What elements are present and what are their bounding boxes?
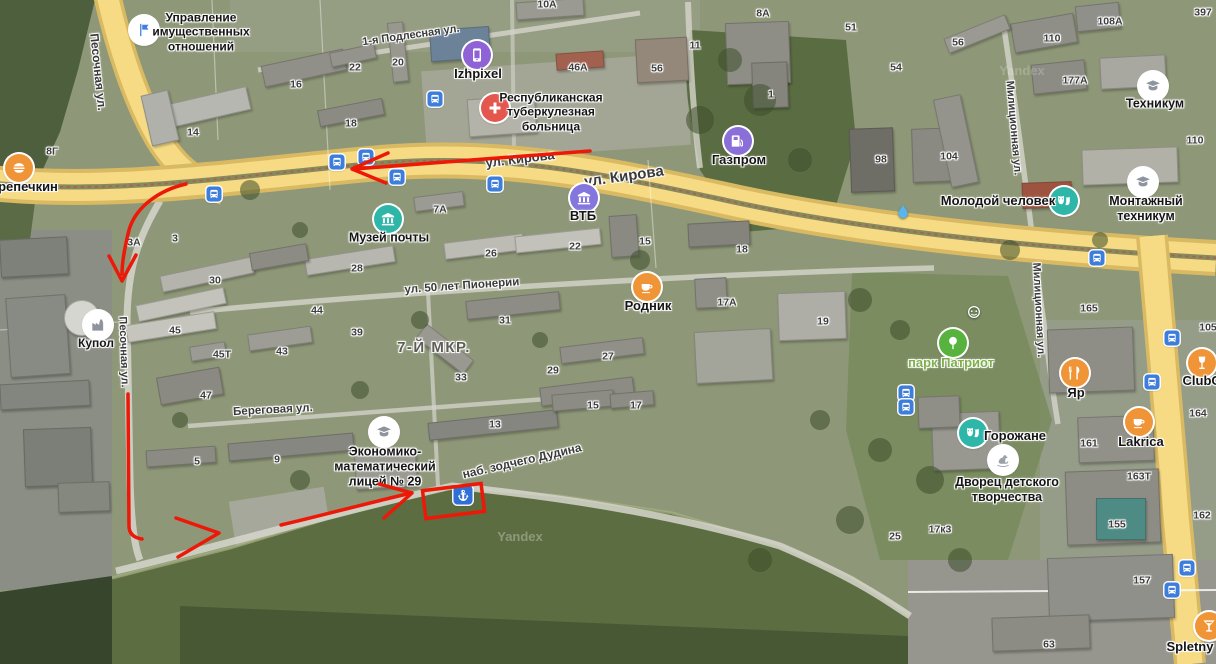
- bus-stop-icon[interactable]: [428, 92, 443, 107]
- building: [149, 86, 252, 132]
- house-number: 54: [890, 62, 902, 75]
- house-number: 18: [345, 118, 357, 131]
- street-label: Милиционная ул.: [1029, 262, 1047, 357]
- building: [559, 337, 644, 364]
- building: [159, 256, 254, 292]
- building: [751, 61, 789, 108]
- building: [57, 481, 110, 513]
- building: [917, 395, 960, 428]
- house-number: 16: [290, 79, 302, 92]
- house-number: 29: [547, 365, 559, 378]
- izhpixel-label[interactable]: Izhpixel: [454, 66, 502, 82]
- gorozhane-icon[interactable]: [959, 419, 987, 447]
- post-museum-icon[interactable]: [374, 205, 402, 233]
- house-number: 397: [1194, 7, 1212, 20]
- house-number: 33: [455, 372, 467, 385]
- street-label: ул. Кирова: [583, 163, 665, 192]
- bus-stop-icon[interactable]: [899, 400, 914, 415]
- district-label: 7-Й МКР.: [397, 339, 471, 357]
- perepechkin-icon[interactable]: [5, 154, 33, 182]
- house-number: 108А: [1097, 16, 1122, 29]
- tree: [810, 410, 830, 430]
- house-number: 19: [817, 316, 829, 329]
- house-number: 11: [689, 40, 700, 53]
- pier-anchor-icon[interactable]: [454, 486, 473, 505]
- park-attraction-icon[interactable]: [965, 303, 983, 321]
- lyceum-29-icon[interactable]: [370, 418, 398, 446]
- tree: [836, 506, 864, 534]
- tree: [290, 470, 310, 490]
- spletny-label[interactable]: Spletny: [1167, 639, 1214, 655]
- house-number: 98: [875, 154, 887, 167]
- house-number: 8Г: [46, 146, 58, 159]
- building: [261, 49, 348, 88]
- building: [694, 328, 774, 384]
- street-label: Береговая ул.: [233, 402, 313, 420]
- building: [145, 446, 216, 468]
- gazprom-icon[interactable]: [724, 127, 752, 155]
- perepechkin-label[interactable]: репечкин: [0, 179, 58, 195]
- house-number: 164: [1189, 408, 1207, 421]
- tree: [788, 148, 812, 172]
- building: [1031, 59, 1088, 94]
- tree: [748, 548, 772, 572]
- building: [1010, 13, 1078, 54]
- map-watermark: Yandex: [999, 63, 1045, 79]
- drawn-arrow: [128, 394, 142, 539]
- drawn-arrow: [109, 255, 136, 281]
- tb-hospital-label[interactable]: Республиканская туберкулезная больница: [499, 90, 602, 133]
- icons-layer: репечкинУправление имущественных отношен…: [0, 0, 1216, 664]
- yar-label[interactable]: Яр: [1067, 385, 1084, 401]
- lakrica-icon[interactable]: [1125, 408, 1153, 436]
- house-number: 20: [392, 57, 404, 70]
- drawn-arrow: [281, 494, 407, 525]
- house-number: 161: [1080, 438, 1098, 451]
- building: [329, 43, 377, 67]
- tree: [351, 381, 369, 399]
- house-number: 44: [311, 305, 323, 318]
- building: [317, 98, 385, 127]
- building: [849, 127, 895, 192]
- house-number: 9: [274, 454, 280, 467]
- tree: [240, 180, 260, 200]
- house-number: 22: [569, 241, 581, 254]
- house-number: 17А: [717, 297, 736, 310]
- izhpixel-icon[interactable]: [463, 41, 491, 69]
- house-number: 14: [187, 127, 199, 140]
- tree: [718, 48, 742, 72]
- building: [555, 50, 604, 70]
- bus-stop-icon[interactable]: [390, 170, 405, 185]
- house-number: 110: [1187, 135, 1204, 148]
- yar-icon[interactable]: [1061, 359, 1089, 387]
- house-number: 63: [1043, 639, 1055, 652]
- building: [125, 311, 217, 343]
- dvorets-detskogo-icon[interactable]: [989, 446, 1017, 474]
- labels-layer: Песочная ул.Песочная ул.1-я Подлесная ул…: [0, 0, 1216, 664]
- house-number: 13: [489, 419, 501, 432]
- building: [1096, 498, 1146, 540]
- tree: [848, 288, 872, 312]
- house-number: 28: [351, 263, 363, 276]
- building: [427, 409, 558, 440]
- tree: [916, 466, 944, 494]
- bus-stop-icon[interactable]: [488, 177, 503, 192]
- bus-stop-icon[interactable]: [1165, 331, 1180, 346]
- building: [416, 323, 474, 374]
- bus-stop-icon[interactable]: [1165, 583, 1180, 598]
- building: [5, 294, 70, 378]
- street-label: ул. 50 лет Пионерии: [404, 276, 520, 298]
- bus-stop-icon[interactable]: [207, 187, 222, 202]
- building: [387, 21, 409, 82]
- house-number: 105: [1199, 322, 1216, 335]
- house-number: 18: [736, 244, 748, 257]
- street-label: Песочная ул.: [115, 316, 131, 388]
- kupol-label[interactable]: Купол: [78, 336, 114, 350]
- house-number: 157: [1133, 575, 1151, 588]
- street-label: 1-я Подлесная ул.: [362, 23, 461, 50]
- house-number: 17к3: [929, 524, 952, 537]
- dvorets-detskogo-label[interactable]: Дворец детского творчества: [955, 475, 1059, 505]
- bus-stop-icon[interactable]: [359, 150, 374, 165]
- map-watermark: Yandex: [497, 529, 543, 545]
- rodnik-icon[interactable]: [633, 273, 661, 301]
- building: [443, 233, 524, 260]
- house-number: 56: [651, 63, 663, 76]
- kupol-icon[interactable]: [84, 311, 112, 339]
- satellite-terrain: [0, 0, 1216, 664]
- house-number: 7А: [433, 204, 446, 217]
- route-annotations: [0, 0, 1216, 664]
- tree: [948, 548, 972, 572]
- lyceum-29-label[interactable]: Экономико- математический лицей № 29: [334, 445, 435, 490]
- building: [609, 390, 654, 409]
- tree: [292, 222, 308, 238]
- fountain-icon[interactable]: [894, 203, 912, 221]
- bus-stop-icon[interactable]: [1145, 375, 1160, 390]
- bus-stop-icon[interactable]: [1180, 561, 1195, 576]
- drawn-arrow: [354, 151, 590, 169]
- building: [725, 21, 791, 85]
- building: [135, 287, 227, 322]
- street-label: Песочная ул.: [87, 33, 109, 112]
- drawn-arrow: [176, 518, 219, 557]
- house-number: 45Т: [213, 349, 231, 362]
- tree: [630, 250, 650, 270]
- tree: [744, 84, 776, 116]
- building: [777, 291, 847, 341]
- clubo-label[interactable]: ClubO: [1183, 373, 1216, 389]
- house-number: 26: [485, 248, 497, 261]
- gorozhane-label[interactable]: Горожане: [984, 428, 1046, 444]
- buildings-layer: [0, 0, 1216, 664]
- street-label: наб. зодчего Дудина: [461, 440, 583, 481]
- house-number: 1: [768, 89, 774, 102]
- house-number: 27: [602, 351, 614, 364]
- house-number: 163Т: [1127, 471, 1151, 484]
- tree: [1092, 232, 1108, 248]
- building: [1065, 468, 1162, 545]
- house-number: 155: [1108, 519, 1126, 532]
- building: [1075, 2, 1121, 32]
- house-number: 8А: [756, 8, 769, 21]
- building: [911, 127, 959, 183]
- house-number: 47: [200, 390, 212, 403]
- rodnik-label[interactable]: Родник: [625, 298, 672, 314]
- street-label: ул. Кирова: [485, 147, 556, 171]
- house-number: 51: [845, 22, 857, 35]
- building: [0, 236, 69, 278]
- tree: [686, 106, 714, 134]
- property-office-label[interactable]: Управление имущественных отношений: [152, 10, 249, 53]
- house-number: 104: [940, 151, 958, 164]
- building: [933, 94, 979, 188]
- tree: [890, 320, 910, 340]
- house-number: 177А: [1062, 75, 1087, 88]
- house-number: 17: [630, 400, 642, 413]
- house-number: 22: [349, 62, 361, 75]
- building: [141, 90, 180, 147]
- bus-stop-icon[interactable]: [330, 155, 345, 170]
- house-number: 110: [1044, 33, 1061, 46]
- montazhny-tehnikum-icon[interactable]: [1129, 168, 1157, 196]
- building: [304, 245, 396, 276]
- tree: [411, 311, 429, 329]
- spletny-icon[interactable]: [1195, 612, 1216, 640]
- map-canvas[interactable]: Песочная ул.Песочная ул.1-я Подлесная ул…: [0, 0, 1216, 664]
- building: [156, 367, 224, 406]
- house-number: 25: [889, 531, 901, 544]
- building: [0, 380, 91, 411]
- building: [249, 243, 309, 271]
- building: [694, 277, 728, 309]
- tree: [868, 438, 892, 462]
- building: [943, 14, 1010, 54]
- bus-stop-icon[interactable]: [1090, 251, 1105, 266]
- building: [413, 191, 464, 212]
- building: [247, 326, 313, 352]
- building: [23, 427, 93, 487]
- house-number: 30: [209, 275, 221, 288]
- house-number: 46А: [568, 62, 587, 75]
- building: [1047, 554, 1175, 622]
- building: [539, 376, 635, 406]
- house-number: 15: [587, 400, 599, 413]
- tree: [1000, 240, 1020, 260]
- building: [551, 389, 614, 411]
- building: [635, 37, 689, 84]
- tree: [532, 332, 548, 348]
- house-number: 3: [172, 233, 178, 246]
- house-number: 165: [1080, 303, 1098, 316]
- building: [687, 220, 750, 247]
- house-number: 31: [499, 315, 511, 328]
- house-number: 56: [952, 37, 964, 50]
- house-number: 162: [1193, 510, 1211, 523]
- house-number: 10А: [537, 0, 556, 11]
- house-number: 3А: [127, 237, 140, 250]
- bus-stop-icon[interactable]: [899, 386, 914, 401]
- post-museum-label[interactable]: Музей почты: [349, 231, 429, 246]
- park-patriot-label[interactable]: парк Патриот: [908, 355, 994, 371]
- lakrica-label[interactable]: Lakrica: [1118, 434, 1164, 450]
- house-number: 43: [276, 346, 288, 359]
- building: [609, 214, 640, 258]
- montazhny-tehnikum-label[interactable]: Монтажный техникум: [1109, 194, 1182, 224]
- house-number: 39: [351, 327, 363, 340]
- building: [189, 341, 227, 361]
- gazprom-label[interactable]: Газпром: [712, 152, 766, 168]
- street-label: Милиционная ул.: [1002, 80, 1023, 176]
- building: [1047, 327, 1135, 394]
- building: [465, 291, 560, 320]
- building: [514, 228, 601, 254]
- building: [991, 614, 1090, 651]
- house-number: 5: [194, 456, 200, 469]
- house-number: 15: [639, 236, 651, 249]
- vtb-label[interactable]: ВТБ: [570, 208, 596, 224]
- tehnikum-label[interactable]: Техникум: [1126, 97, 1184, 112]
- house-number: 45: [169, 325, 181, 338]
- molodoy-chelovek-label[interactable]: Молодой человек: [941, 193, 1055, 209]
- park-patriot-icon[interactable]: [939, 329, 967, 357]
- building: [515, 0, 584, 20]
- tree: [172, 412, 188, 428]
- drawn-arrow: [122, 184, 186, 274]
